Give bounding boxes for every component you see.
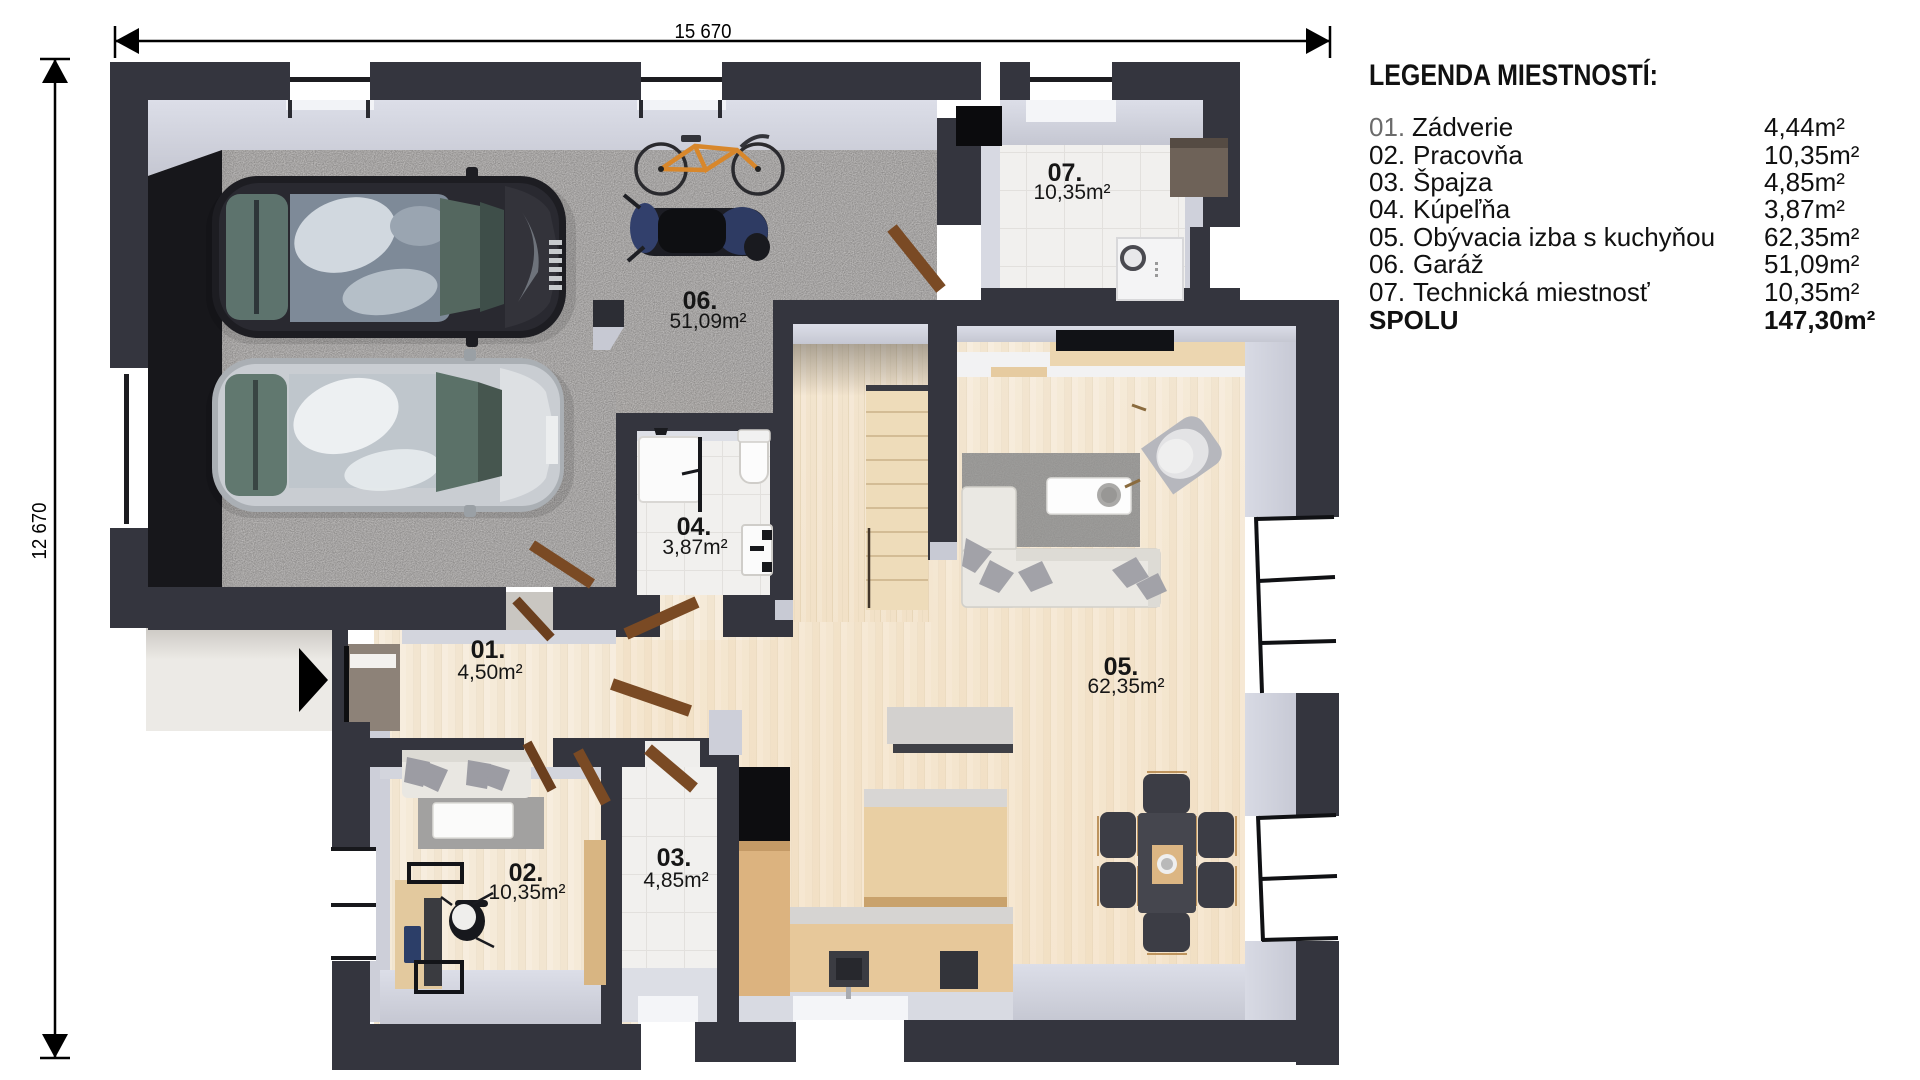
svg-text:07.: 07. <box>1369 277 1405 307</box>
svg-text:15 670: 15 670 <box>675 21 732 43</box>
svg-text:SPOLU: SPOLU <box>1369 305 1459 335</box>
svg-text:01.: 01. <box>471 636 506 664</box>
svg-text:4,50m²: 4,50m² <box>457 661 522 684</box>
svg-text:147,30m²: 147,30m² <box>1764 305 1876 335</box>
svg-text:3,87m²: 3,87m² <box>662 536 727 559</box>
svg-text:62,35m²: 62,35m² <box>1764 222 1860 252</box>
svg-text:06.: 06. <box>1369 249 1405 279</box>
svg-text:4,85m²: 4,85m² <box>643 869 708 892</box>
svg-text:02.: 02. <box>1369 140 1405 170</box>
svg-text:Zádverie: Zádverie <box>1412 112 1513 142</box>
svg-text:4,85m²: 4,85m² <box>1764 167 1845 197</box>
svg-text:51,09m²: 51,09m² <box>669 310 746 333</box>
svg-text:4,44m²: 4,44m² <box>1764 112 1845 142</box>
svg-text:62,35m²: 62,35m² <box>1087 675 1164 698</box>
svg-text:10,35m²: 10,35m² <box>1764 140 1860 170</box>
svg-text:03.: 03. <box>657 844 692 872</box>
svg-text:Obývacia izba s kuchyňou: Obývacia izba s kuchyňou <box>1413 222 1715 252</box>
svg-text:12 670: 12 670 <box>29 503 51 560</box>
svg-text:01.: 01. <box>1369 112 1405 142</box>
svg-text:Garáž: Garáž <box>1413 249 1484 279</box>
svg-text:05.: 05. <box>1369 222 1405 252</box>
svg-text:10,35m²: 10,35m² <box>488 881 565 904</box>
svg-text:04.: 04. <box>1369 194 1405 224</box>
svg-text:51,09m²: 51,09m² <box>1764 249 1860 279</box>
svg-text:10,35m²: 10,35m² <box>1033 181 1110 204</box>
svg-text:10,35m²: 10,35m² <box>1764 277 1860 307</box>
svg-text:Kúpeľňa: Kúpeľňa <box>1413 194 1511 224</box>
svg-text:Pracovňa: Pracovňa <box>1413 140 1523 170</box>
svg-text:Špajza: Špajza <box>1413 167 1493 197</box>
svg-text:3,87m²: 3,87m² <box>1764 194 1845 224</box>
svg-text:LEGENDA MIESTNOSTÍ:: LEGENDA MIESTNOSTÍ: <box>1369 58 1658 92</box>
svg-text:Technická miestnosť: Technická miestnosť <box>1413 277 1650 307</box>
svg-text:03.: 03. <box>1369 167 1405 197</box>
